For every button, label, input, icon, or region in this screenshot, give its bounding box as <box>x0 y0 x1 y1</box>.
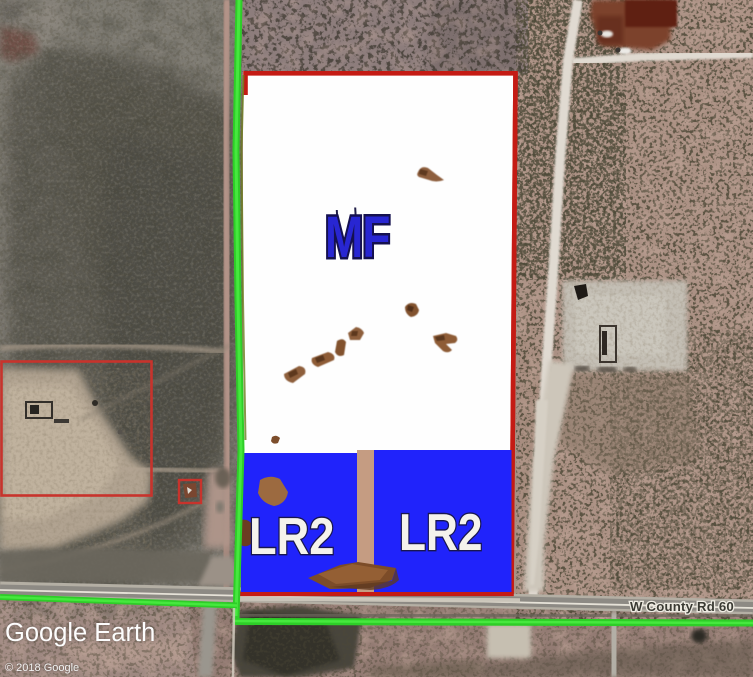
svg-text:LR2: LR2 <box>249 508 334 566</box>
svg-text:MF: MF <box>325 206 390 270</box>
svg-text:W County Rd 60: W County Rd 60 <box>630 599 734 614</box>
svg-text:Google Earth: Google Earth <box>5 619 155 647</box>
svg-text:LR2: LR2 <box>399 504 482 562</box>
svg-text:© 2018 Google: © 2018 Google <box>5 662 79 674</box>
